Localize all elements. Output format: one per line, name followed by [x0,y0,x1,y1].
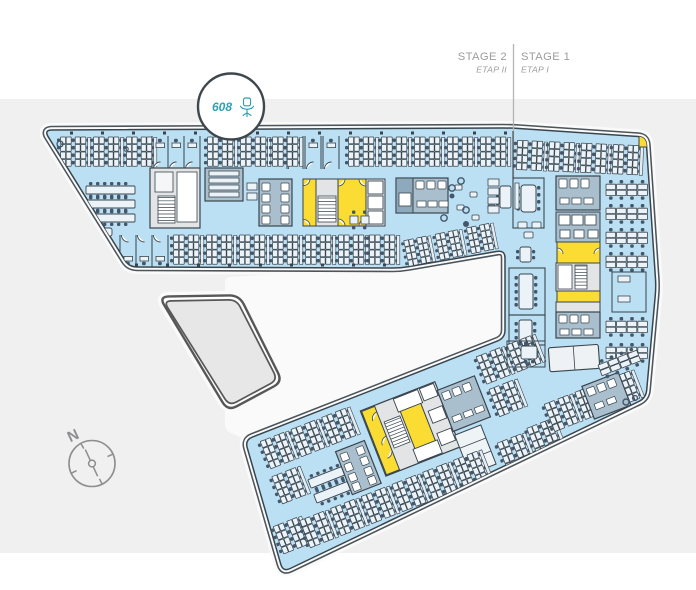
svg-text:STAGE 1: STAGE 1 [521,51,570,63]
svg-text:608: 608 [212,100,232,114]
svg-text:ETAP II: ETAP II [476,65,507,75]
svg-text:STAGE 2: STAGE 2 [458,51,507,63]
svg-text:ETAP I: ETAP I [521,65,549,75]
